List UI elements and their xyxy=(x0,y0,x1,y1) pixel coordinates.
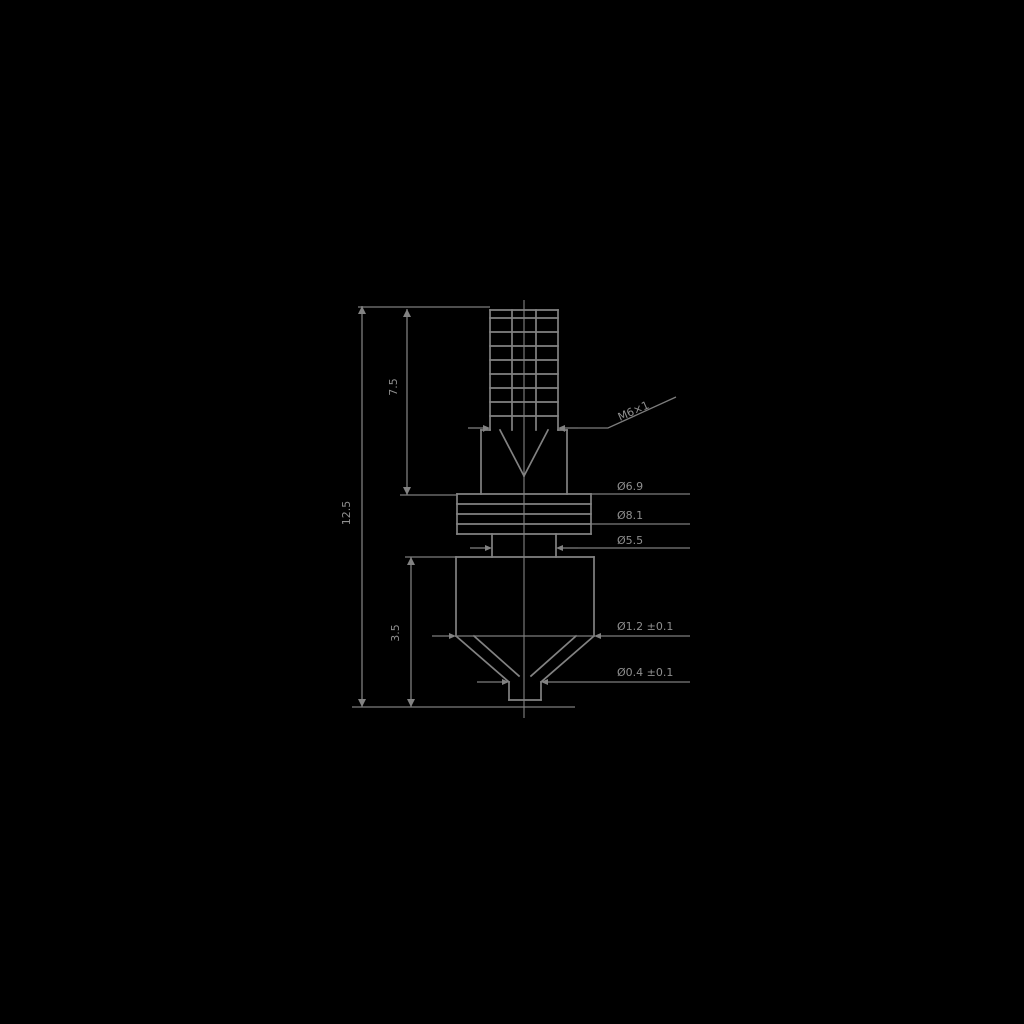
flange-top-diameter-label: Ø6.9 xyxy=(617,480,643,493)
dimension-labels: 12.5 7.5 3.5 M6×1 Ø6.9 Ø8.1 Ø5.5 Ø1.2 ±0… xyxy=(340,378,673,679)
nozzle-technical-drawing: 12.5 7.5 3.5 M6×1 Ø6.9 Ø8.1 Ø5.5 Ø1.2 ±0… xyxy=(0,0,1024,1024)
drawing-canvas: 12.5 7.5 3.5 M6×1 Ø6.9 Ø8.1 Ø5.5 Ø1.2 ±0… xyxy=(0,0,1024,1024)
lower-height-label: 3.5 xyxy=(389,624,402,642)
cone-tip-section xyxy=(456,636,594,700)
upper-height-label: 7.5 xyxy=(387,378,400,396)
lower-height-dimension xyxy=(405,557,456,707)
tip-orifice-diameter-label: Ø0.4 ±0.1 xyxy=(617,666,673,679)
overall-height-label: 12.5 xyxy=(340,501,353,526)
thread-callout-label: M6×1 xyxy=(616,399,651,424)
part-outline xyxy=(456,310,594,700)
flange-bottom-diameter-label: Ø8.1 xyxy=(617,509,643,522)
neck-diameter-label: Ø5.5 xyxy=(617,534,643,547)
neck-dimension xyxy=(470,545,690,551)
cone-base-diameter-label: Ø1.2 ±0.1 xyxy=(617,620,673,633)
overall-height-dimension xyxy=(352,306,575,707)
hex-body-section xyxy=(456,557,594,636)
dimension-lines xyxy=(352,306,690,707)
cone-base-dimension xyxy=(432,633,690,639)
upper-height-dimension xyxy=(400,309,457,495)
